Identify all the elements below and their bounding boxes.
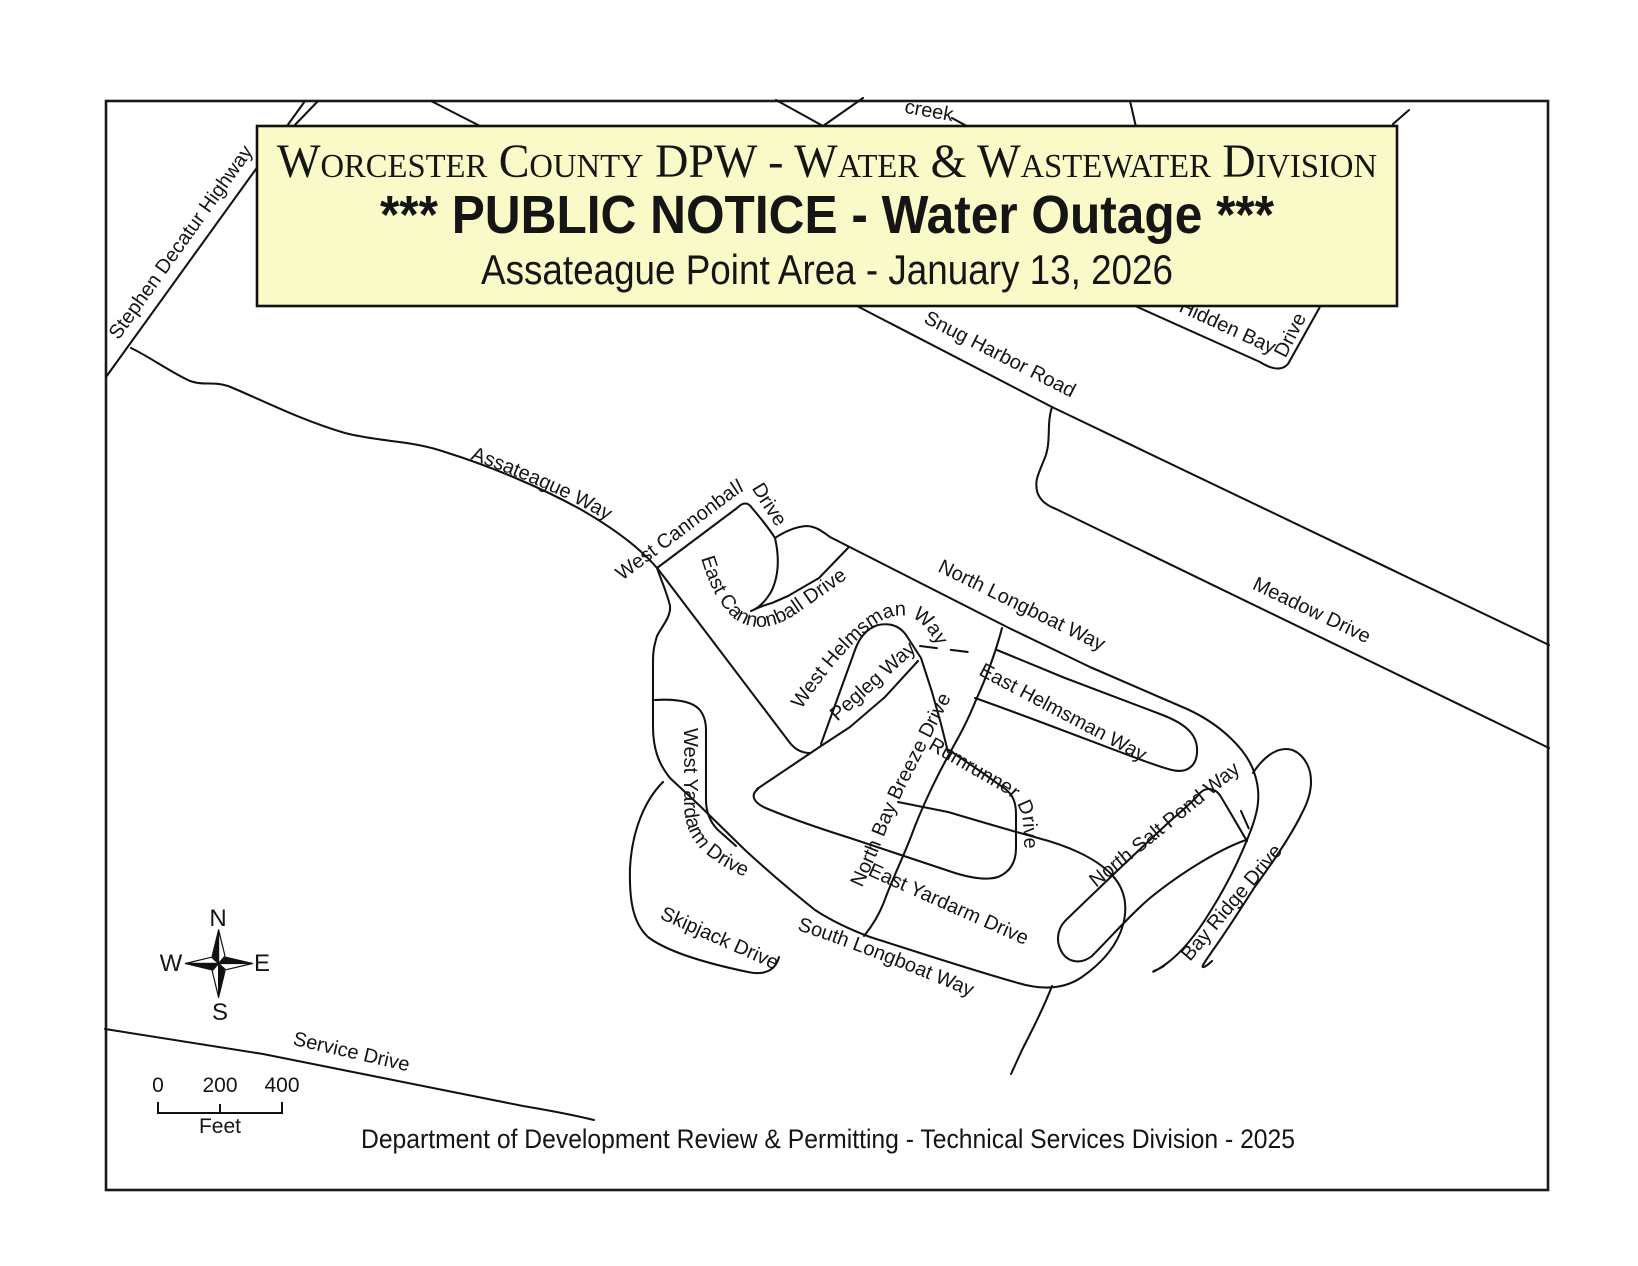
svg-text:400: 400	[264, 1074, 299, 1097]
svg-text:Department of Development Revi: Department of Development Review & Permi…	[361, 1124, 1295, 1154]
svg-text:E: E	[254, 950, 270, 977]
svg-text:Feet: Feet	[199, 1115, 241, 1138]
svg-text:200: 200	[202, 1074, 237, 1097]
svg-text:N: N	[209, 905, 226, 932]
svg-text:Assateague Point Area - Januar: Assateague Point Area - January 13, 2026	[481, 246, 1173, 293]
svg-text:*** PUBLIC NOTICE - Water Outa: *** PUBLIC NOTICE - Water Outage ***	[380, 185, 1274, 245]
svg-text:0: 0	[152, 1074, 164, 1097]
svg-text:S: S	[212, 999, 228, 1026]
svg-text:W: W	[160, 950, 183, 977]
svg-text:Worcester County DPW - Water &: Worcester County DPW - Water & Wastewate…	[277, 135, 1377, 188]
